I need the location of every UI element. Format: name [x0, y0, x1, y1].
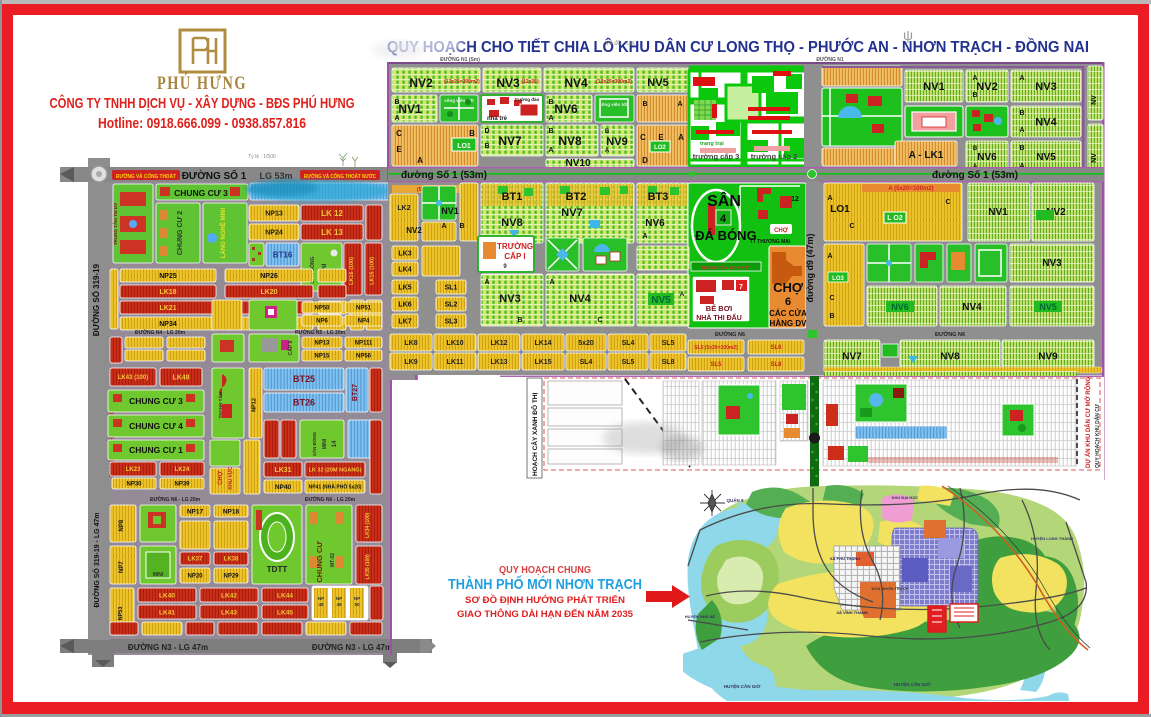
- svg-text:NP111: NP111: [355, 341, 373, 347]
- svg-text:trạng trại: trạng trại: [700, 141, 724, 147]
- svg-text:ĐƯỜNG SỐ 1: ĐƯỜNG SỐ 1: [182, 168, 247, 182]
- svg-text:đường d9 (47m): đường d9 (47m): [805, 234, 815, 303]
- svg-text:SL1: SL1: [445, 285, 458, 292]
- svg-text:GIAO THÔNG DÀI HẠN ĐẾN NĂM 203: GIAO THÔNG DÀI HẠN ĐẾN NĂM 2035: [457, 608, 634, 620]
- svg-text:50: 50: [354, 602, 360, 607]
- svg-text:LK3: LK3: [398, 251, 411, 258]
- svg-text:NV1: NV1: [398, 102, 422, 116]
- svg-text:NP13: NP13: [265, 211, 283, 218]
- svg-text:NV8: NV8: [558, 134, 582, 148]
- svg-text:D: D: [484, 128, 489, 135]
- svg-text:LK43: LK43: [221, 609, 237, 616]
- svg-text:ĐƯỜNG N3 - LG 47m: ĐƯỜNG N3 - LG 47m: [128, 643, 208, 652]
- svg-text:NV7: NV7: [842, 352, 862, 363]
- svg-text:C: C: [597, 317, 602, 324]
- svg-text:MINI: MINI: [153, 572, 164, 578]
- svg-text:nhà trẻ: nhà trẻ: [487, 116, 508, 122]
- svg-text:B: B: [548, 99, 553, 106]
- svg-text:TRUNG TÂM TM DV: TRUNG TÂM TM DV: [112, 203, 118, 245]
- svg-text:LK41: LK41: [159, 609, 175, 616]
- svg-text:ĐƯỜNG N6: ĐƯỜNG N6: [715, 330, 745, 338]
- svg-text:SL4: SL4: [580, 359, 593, 366]
- svg-text:LK48: LK48: [172, 375, 189, 382]
- svg-text:trường đào: trường đào: [515, 97, 540, 102]
- svg-text:L O2: L O2: [887, 215, 903, 222]
- svg-text:trường cấp 3: trường cấp 3: [693, 152, 740, 161]
- svg-text:LK20: LK20: [260, 289, 277, 296]
- svg-text:LK42: LK42: [221, 592, 237, 599]
- svg-text:LK 12: LK 12: [321, 209, 343, 218]
- svg-text:CHUNG CƯ 2: CHUNG CƯ 2: [177, 211, 184, 255]
- svg-text:LK9: LK9: [404, 359, 417, 366]
- svg-text:NP8: NP8: [119, 519, 125, 531]
- svg-text:LK16 (100): LK16 (100): [349, 257, 355, 285]
- svg-text:LO3: LO3: [832, 276, 844, 282]
- svg-text:TT THƯƠNG MẠI: TT THƯƠNG MẠI: [750, 239, 791, 245]
- svg-text:SL5: SL5: [622, 359, 635, 366]
- svg-text:LK44: LK44: [277, 592, 293, 599]
- svg-text:LK24: LK24: [175, 467, 190, 473]
- svg-text:SL5: SL5: [710, 362, 722, 368]
- svg-text:LK34 (100): LK34 (100): [365, 512, 371, 538]
- svg-text:LK38: LK38: [224, 557, 239, 563]
- svg-text:NP13: NP13: [314, 341, 330, 347]
- svg-text:NP34: NP34: [159, 321, 177, 328]
- svg-text:ψ: ψ: [903, 27, 913, 43]
- svg-text:NV9: NV9: [1038, 352, 1058, 363]
- svg-text:NP56: NP56: [356, 354, 372, 360]
- svg-text:14: 14: [332, 440, 338, 447]
- svg-text:NP6: NP6: [316, 319, 328, 325]
- svg-text:LK11: LK11: [447, 359, 464, 366]
- svg-text:NV1: NV1: [988, 207, 1008, 218]
- svg-text:NP39: NP39: [174, 482, 190, 488]
- svg-text:6: 6: [785, 296, 791, 308]
- svg-text:SL5 (5x20=100m2): SL5 (5x20=100m2): [694, 345, 738, 351]
- svg-text:A (5x20=100m2): A (5x20=100m2): [888, 186, 933, 192]
- svg-text:LK8: LK8: [404, 340, 417, 347]
- svg-text:HUYỆN LONG THÀNH: HUYỆN LONG THÀNH: [1031, 536, 1073, 541]
- svg-text:SÂN: SÂN: [707, 191, 741, 210]
- svg-text:NV3: NV3: [1035, 81, 1056, 93]
- svg-text:C: C: [640, 133, 646, 142]
- svg-text:A: A: [678, 133, 684, 142]
- svg-text:CÔNG TY TNHH DỊCH VỤ - XÂY DỰN: CÔNG TY TNHH DỊCH VỤ - XÂY DỰNG - BĐS PH…: [50, 94, 355, 112]
- svg-text:A: A: [642, 233, 647, 240]
- svg-text:CHUNG CƯ 4: CHUNG CƯ 4: [129, 421, 183, 431]
- svg-text:ĐÁ BÓNG: ĐÁ BÓNG: [695, 228, 756, 243]
- svg-text:LO2: LO2: [654, 145, 666, 151]
- svg-text:DỰ ÁN KHU DÂN CƯ MỞ RỘNG: DỰ ÁN KHU DÂN CƯ MỞ RỘNG: [1084, 376, 1092, 468]
- svg-text:NP7: NP7: [119, 561, 125, 573]
- svg-text:đường Số 1 (53m): đường Số 1 (53m): [401, 169, 487, 181]
- svg-text:B: B: [972, 92, 977, 99]
- svg-text:NV4: NV4: [569, 293, 591, 305]
- svg-text:(12x26): (12x26): [521, 79, 539, 85]
- svg-text:B: B: [829, 313, 834, 320]
- svg-text:BT2: BT2: [566, 191, 587, 203]
- svg-text:A: A: [548, 147, 553, 154]
- svg-text:B: B: [469, 129, 475, 138]
- svg-text:A: A: [827, 253, 832, 260]
- svg-text:B: B: [394, 99, 399, 106]
- svg-text:SL4: SL4: [622, 340, 635, 347]
- svg-text:LK14: LK14: [534, 340, 551, 347]
- svg-text:D: D: [642, 156, 648, 165]
- svg-text:NV8: NV8: [940, 352, 960, 363]
- svg-text:SL8: SL8: [662, 359, 675, 366]
- svg-text:SƠ ĐỒ ĐỊNH HƯỚNG PHÁT TRIỂN: SƠ ĐỒ ĐỊNH HƯỚNG PHÁT TRIỂN: [465, 594, 625, 606]
- svg-text:đường Số 1 (53m): đường Số 1 (53m): [932, 169, 1018, 181]
- svg-text:BT26: BT26: [293, 398, 315, 408]
- svg-text:NP24: NP24: [265, 230, 283, 237]
- svg-text:NP29: NP29: [223, 574, 239, 580]
- svg-text:HUYỆN CẦN GIỜ: HUYỆN CẦN GIỜ: [894, 680, 931, 687]
- svg-text:LK10: LK10: [446, 340, 463, 347]
- svg-text:LK13: LK13: [490, 359, 507, 366]
- svg-text:NV: NV: [1091, 95, 1098, 105]
- svg-text:NP26: NP26: [260, 273, 278, 280]
- svg-text:HUYỆN CẦN GIỜ: HUYỆN CẦN GIỜ: [724, 682, 761, 689]
- svg-text:A: A: [680, 292, 685, 298]
- svg-text:NV4: NV4: [564, 76, 588, 90]
- svg-text:QUẬN 9: QUẬN 9: [726, 497, 743, 503]
- svg-text:NV8: NV8: [501, 217, 522, 229]
- svg-text:A: A: [827, 195, 832, 202]
- svg-text:BT1: BT1: [502, 191, 523, 203]
- svg-text:B: B: [1019, 110, 1024, 117]
- svg-text:49: 49: [336, 602, 342, 607]
- svg-text:QUY HOẠCH CHUNG: QUY HOẠCH CHUNG: [499, 564, 591, 576]
- svg-text:NV2: NV2: [409, 76, 433, 90]
- svg-text:NP: NP: [318, 596, 324, 601]
- svg-text:NP25: NP25: [159, 273, 177, 280]
- svg-text:LK40: LK40: [159, 592, 175, 599]
- svg-text:NV6: NV6: [645, 218, 665, 229]
- svg-text:LK21: LK21: [159, 305, 176, 312]
- svg-text:NV6: NV6: [977, 152, 997, 163]
- svg-text:NV: NV: [1091, 153, 1098, 163]
- svg-text:Tỷ lệ : 1/500: Tỷ lệ : 1/500: [248, 153, 276, 160]
- svg-text:B: B: [484, 143, 489, 150]
- svg-text:A: A: [394, 115, 399, 122]
- svg-text:A: A: [417, 156, 423, 165]
- svg-text:CHUNG CƯ 3: CHUNG CƯ 3: [129, 396, 183, 406]
- svg-text:(12x25=300m2): (12x25=300m2): [596, 79, 632, 85]
- svg-text:CHUNG CƯ 1: CHUNG CƯ 1: [129, 445, 183, 455]
- svg-text:LK5: LK5: [398, 285, 411, 292]
- svg-text:LK12: LK12: [490, 340, 507, 347]
- svg-text:ĐƯỜNG N6 - LG 20m: ĐƯỜNG N6 - LG 20m: [150, 495, 201, 503]
- svg-text:A: A: [1019, 75, 1024, 82]
- svg-text:BT3: BT3: [648, 191, 669, 203]
- svg-text:~: ~: [902, 44, 907, 54]
- svg-text:NV5: NV5: [651, 295, 671, 306]
- svg-text:A: A: [1019, 127, 1024, 134]
- svg-text:NP15: NP15: [314, 354, 330, 360]
- svg-text:LK15: LK15: [534, 359, 551, 366]
- svg-text:NV1: NV1: [441, 206, 459, 216]
- svg-text:ĐƯỜNG SỐ 319-19: ĐƯỜNG SỐ 319-19: [91, 263, 101, 336]
- svg-text:7: 7: [739, 284, 743, 291]
- svg-text:BT25: BT25: [293, 374, 315, 384]
- svg-text:12: 12: [791, 196, 799, 203]
- svg-text:HOẠCH CÂY XANH ĐÔ THỊ: HOẠCH CÂY XANH ĐÔ THỊ: [530, 393, 539, 476]
- svg-text:SÂN BÓNG: SÂN BÓNG: [310, 431, 317, 456]
- svg-text:MINI: MINI: [322, 438, 328, 449]
- svg-text:Vẽ đồ - t.m: Vẽ đồ - t.m: [605, 41, 634, 47]
- svg-text:NP17: NP17: [187, 508, 204, 515]
- svg-text:NV4: NV4: [1035, 116, 1057, 128]
- svg-text:SL2: SL2: [445, 302, 458, 309]
- svg-text:QUY HOẠCH KHU DÂN CƯ: QUY HOẠCH KHU DÂN CƯ: [1094, 403, 1101, 468]
- svg-text:SL8: SL8: [770, 362, 782, 368]
- svg-text:TDTT: TDTT: [267, 565, 288, 574]
- svg-text:XÃ VĨNH THANH: XÃ VĨNH THANH: [836, 610, 867, 615]
- svg-text:NP53: NP53: [118, 607, 124, 621]
- svg-text:C: C: [829, 295, 834, 302]
- svg-text:LK18: LK18: [159, 289, 176, 296]
- svg-text:TRUNG TÂM HC-VH-TT: TRUNG TÂM HC-VH-TT: [701, 264, 751, 270]
- svg-text:THÀNH PHỐ MỚI NHƠN TRẠCH: THÀNH PHỐ MỚI NHƠN TRẠCH: [448, 575, 642, 593]
- svg-text:LG 53m: LG 53m: [259, 171, 292, 181]
- svg-text:CHỢ: CHỢ: [773, 280, 804, 295]
- svg-text:A: A: [677, 101, 682, 108]
- svg-text:XÃ PHÚ THẠNH: XÃ PHÚ THẠNH: [830, 556, 860, 561]
- svg-text:NV7: NV7: [561, 207, 582, 219]
- svg-text:LO1: LO1: [457, 143, 471, 150]
- svg-text:LK23: LK23: [126, 467, 141, 473]
- svg-text:TRƯỜNG: TRƯỜNG: [497, 242, 533, 251]
- svg-text:NP50: NP50: [314, 306, 330, 312]
- svg-text:LK31: LK31: [274, 467, 291, 474]
- svg-text:C: C: [945, 199, 950, 206]
- svg-text:ĐƯỜNG N1: ĐƯỜNG N1: [816, 55, 844, 63]
- svg-text:LK15 (100): LK15 (100): [370, 257, 376, 285]
- svg-text:B: B: [459, 223, 464, 230]
- svg-text:CHỢ: CHỢ: [774, 228, 789, 234]
- svg-text:ĐƯỜNG N4 - LG 20m: ĐƯỜNG N4 - LG 20m: [135, 328, 186, 336]
- svg-text:HÀNG DV: HÀNG DV: [770, 319, 808, 328]
- svg-text:KCN NHƠN TRẠCH: KCN NHƠN TRẠCH: [872, 586, 909, 591]
- svg-text:ĐƯỜNG N6: ĐƯỜNG N6: [935, 330, 965, 338]
- svg-text:Hotline: 0918.666.099 - 0938.8: Hotline: 0918.666.099 - 0938.857.816: [98, 115, 306, 132]
- svg-text:A: A: [549, 279, 554, 286]
- svg-text:48: 48: [318, 602, 324, 607]
- svg-text:HUYỆN NHÀ BÈ: HUYỆN NHÀ BÈ: [685, 614, 716, 619]
- svg-text:A: A: [441, 223, 446, 230]
- svg-text:NP18: NP18: [223, 508, 240, 515]
- svg-text:LK43 (100): LK43 (100): [118, 375, 148, 381]
- svg-text:NV5: NV5: [647, 77, 668, 89]
- svg-text:NP40: NP40: [275, 484, 292, 491]
- svg-text:B: B: [548, 128, 553, 135]
- svg-text:QUY HOẠCH CHO TIẾT CHIA LÔ KHU: QUY HOẠCH CHO TIẾT CHIA LÔ KHU DÂN CƯ LO…: [387, 37, 1089, 56]
- svg-text:CHỢ: CHỢ: [218, 470, 224, 485]
- svg-text:LÀNG NGHỀ MINI: LÀNG NGHỀ MINI: [220, 208, 227, 259]
- svg-text:NV6: NV6: [554, 102, 578, 116]
- svg-text:B: B: [1019, 145, 1024, 152]
- svg-text:BỂ BƠI: BỂ BƠI: [706, 304, 732, 313]
- svg-text:E: E: [396, 145, 402, 154]
- svg-text:LK 32 (20M NGANG): LK 32 (20M NGANG): [309, 467, 362, 473]
- svg-text:ĐƯỜNG N6 - LG 20m: ĐƯỜNG N6 - LG 20m: [305, 495, 356, 503]
- svg-text:CÁC CỬA: CÁC CỬA: [769, 309, 807, 318]
- svg-text:THANH TÂM: THANH TÂM: [217, 391, 223, 418]
- svg-text:5x20: 5x20: [578, 340, 594, 347]
- svg-text:B: B: [517, 317, 522, 324]
- svg-text:NP4: NP4: [358, 319, 370, 325]
- svg-text:NP41 (NHÀ PHỐ 5x20): NP41 (NHÀ PHỐ 5x20): [309, 483, 362, 490]
- svg-text:A: A: [605, 148, 610, 154]
- svg-text:A: A: [972, 75, 977, 82]
- svg-text:LK37: LK37: [188, 557, 203, 563]
- svg-text:LK2: LK2: [397, 205, 410, 212]
- svg-text:ĐƯỜNG N5 - LG 20m: ĐƯỜNG N5 - LG 20m: [295, 328, 346, 336]
- svg-text:ĐƯỜNG VÀ CỐNG THOÁT: ĐƯỜNG VÀ CỐNG THOÁT: [116, 172, 176, 180]
- svg-text:B: B: [605, 129, 610, 135]
- svg-text:NV3: NV3: [496, 76, 520, 90]
- svg-text:PHÚ HƯNG: PHÚ HƯNG: [157, 72, 247, 94]
- svg-text:NP51: NP51: [356, 306, 372, 312]
- svg-text:LO1: LO1: [830, 204, 850, 215]
- svg-text:NV5: NV5: [1039, 302, 1057, 312]
- svg-text:CẤP I: CẤP I: [504, 251, 525, 261]
- svg-text:LK35 (100): LK35 (100): [365, 554, 371, 580]
- svg-text:C: C: [849, 223, 854, 230]
- svg-text:NV3: NV3: [499, 293, 520, 305]
- svg-text:NP: NP: [354, 596, 360, 601]
- svg-text:NP20: NP20: [187, 574, 203, 580]
- svg-text:trường cấp 2: trường cấp 2: [751, 152, 798, 161]
- svg-text:C: C: [396, 129, 402, 138]
- svg-text:KHU VỰC: KHU VỰC: [228, 466, 234, 490]
- svg-text:NV5: NV5: [1036, 152, 1056, 163]
- svg-text:LK6: LK6: [398, 302, 411, 309]
- svg-text:NP: NP: [336, 596, 342, 601]
- svg-text:A - LK1: A - LK1: [909, 150, 944, 161]
- svg-text:CẤP II: CẤP II: [287, 340, 294, 355]
- svg-text:NV6: NV6: [891, 302, 909, 312]
- svg-text:LK4: LK4: [398, 267, 411, 274]
- svg-text:B: B: [973, 146, 978, 152]
- svg-text:4: 4: [720, 213, 727, 225]
- svg-text:NV4: NV4: [962, 302, 982, 313]
- svg-text:SL6: SL6: [770, 345, 782, 351]
- svg-text:B: B: [642, 101, 647, 108]
- svg-text:ĐƯỜNG N3 - LG 47m: ĐƯỜNG N3 - LG 47m: [312, 643, 392, 652]
- svg-text:CHUNG CƯ: CHUNG CƯ: [315, 541, 324, 583]
- svg-text:(12x25=300m2): (12x25=300m2): [444, 79, 480, 85]
- svg-text:KHU ĐẠI HỌC: KHU ĐẠI HỌC: [892, 495, 919, 500]
- svg-text:BT27: BT27: [352, 384, 359, 401]
- svg-text:LK 13: LK 13: [321, 228, 343, 237]
- svg-text:NV3: NV3: [1042, 258, 1062, 269]
- svg-text:A: A: [548, 115, 553, 122]
- svg-text:MT-02: MT-02: [330, 553, 336, 567]
- svg-text:NV9: NV9: [606, 136, 627, 148]
- svg-text:công viên tdtt: công viên tdtt: [599, 102, 629, 107]
- svg-text:NP12: NP12: [252, 398, 258, 412]
- svg-text:NV1: NV1: [923, 81, 944, 93]
- svg-text:A: A: [484, 279, 489, 286]
- svg-text:LK45: LK45: [277, 609, 293, 616]
- svg-text:SL5: SL5: [662, 340, 675, 347]
- svg-text:LK7: LK7: [398, 319, 411, 326]
- svg-text:NV7: NV7: [498, 134, 522, 148]
- svg-text:ĐƯỜNG VÀ CỐNG THOÁT NƯỚC: ĐƯỜNG VÀ CỐNG THOÁT NƯỚC: [304, 172, 376, 180]
- svg-text:ĐƯỜNG N1 (Sm): ĐƯỜNG N1 (Sm): [440, 55, 480, 63]
- svg-text:SL3: SL3: [445, 319, 458, 326]
- svg-text:NV2: NV2: [406, 226, 422, 235]
- svg-text:CHUNG CƯ 3: CHUNG CƯ 3: [174, 188, 228, 198]
- svg-text:NP30: NP30: [126, 482, 142, 488]
- svg-text:NV2: NV2: [976, 81, 997, 93]
- svg-text:BT16: BT16: [273, 250, 293, 259]
